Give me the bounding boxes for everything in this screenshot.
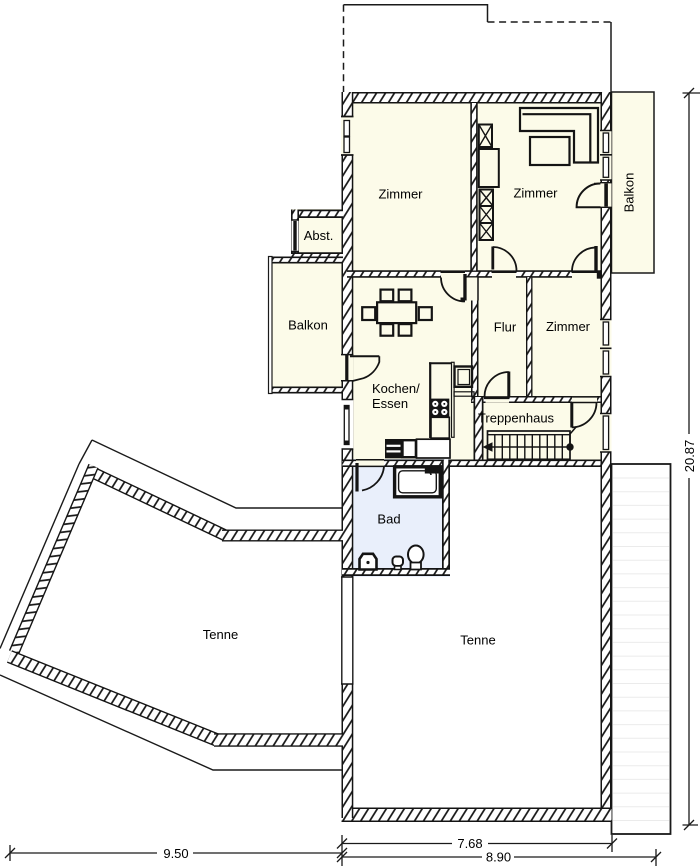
svg-text:Balkon: Balkon <box>288 318 328 333</box>
svg-text:Abst.: Abst. <box>304 228 334 243</box>
svg-text:Essen: Essen <box>372 396 408 411</box>
svg-text:7.68: 7.68 <box>457 836 482 851</box>
svg-text:Kochen/: Kochen/ <box>372 381 420 396</box>
svg-text:Balkon: Balkon <box>622 173 637 213</box>
svg-text:Bad: Bad <box>377 512 400 527</box>
svg-text:Zimmer: Zimmer <box>378 187 423 202</box>
svg-text:8.90: 8.90 <box>486 850 511 865</box>
svg-text:Tenne: Tenne <box>460 633 495 648</box>
svg-text:9.50: 9.50 <box>163 846 188 861</box>
svg-text:20.87: 20.87 <box>682 440 697 473</box>
svg-text:Zimmer: Zimmer <box>513 186 558 201</box>
svg-text:Tenne: Tenne <box>203 627 238 642</box>
svg-text:Treppenhaus: Treppenhaus <box>478 411 555 426</box>
svg-text:Zimmer: Zimmer <box>546 319 591 334</box>
svg-text:Flur: Flur <box>494 320 517 335</box>
